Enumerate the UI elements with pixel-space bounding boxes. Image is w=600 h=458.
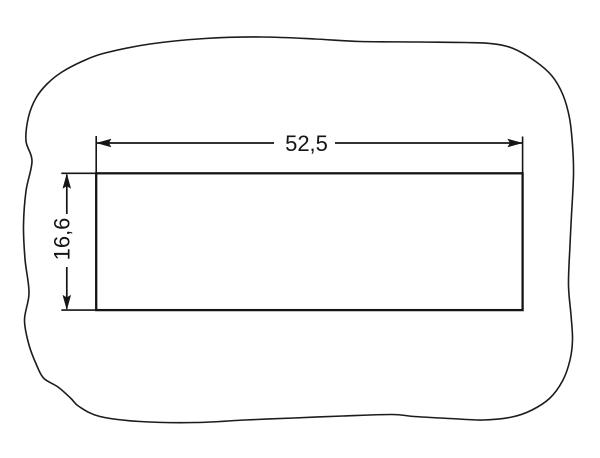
svg-text:52,5: 52,5 xyxy=(285,131,328,156)
svg-text:16,6: 16,6 xyxy=(49,218,74,261)
